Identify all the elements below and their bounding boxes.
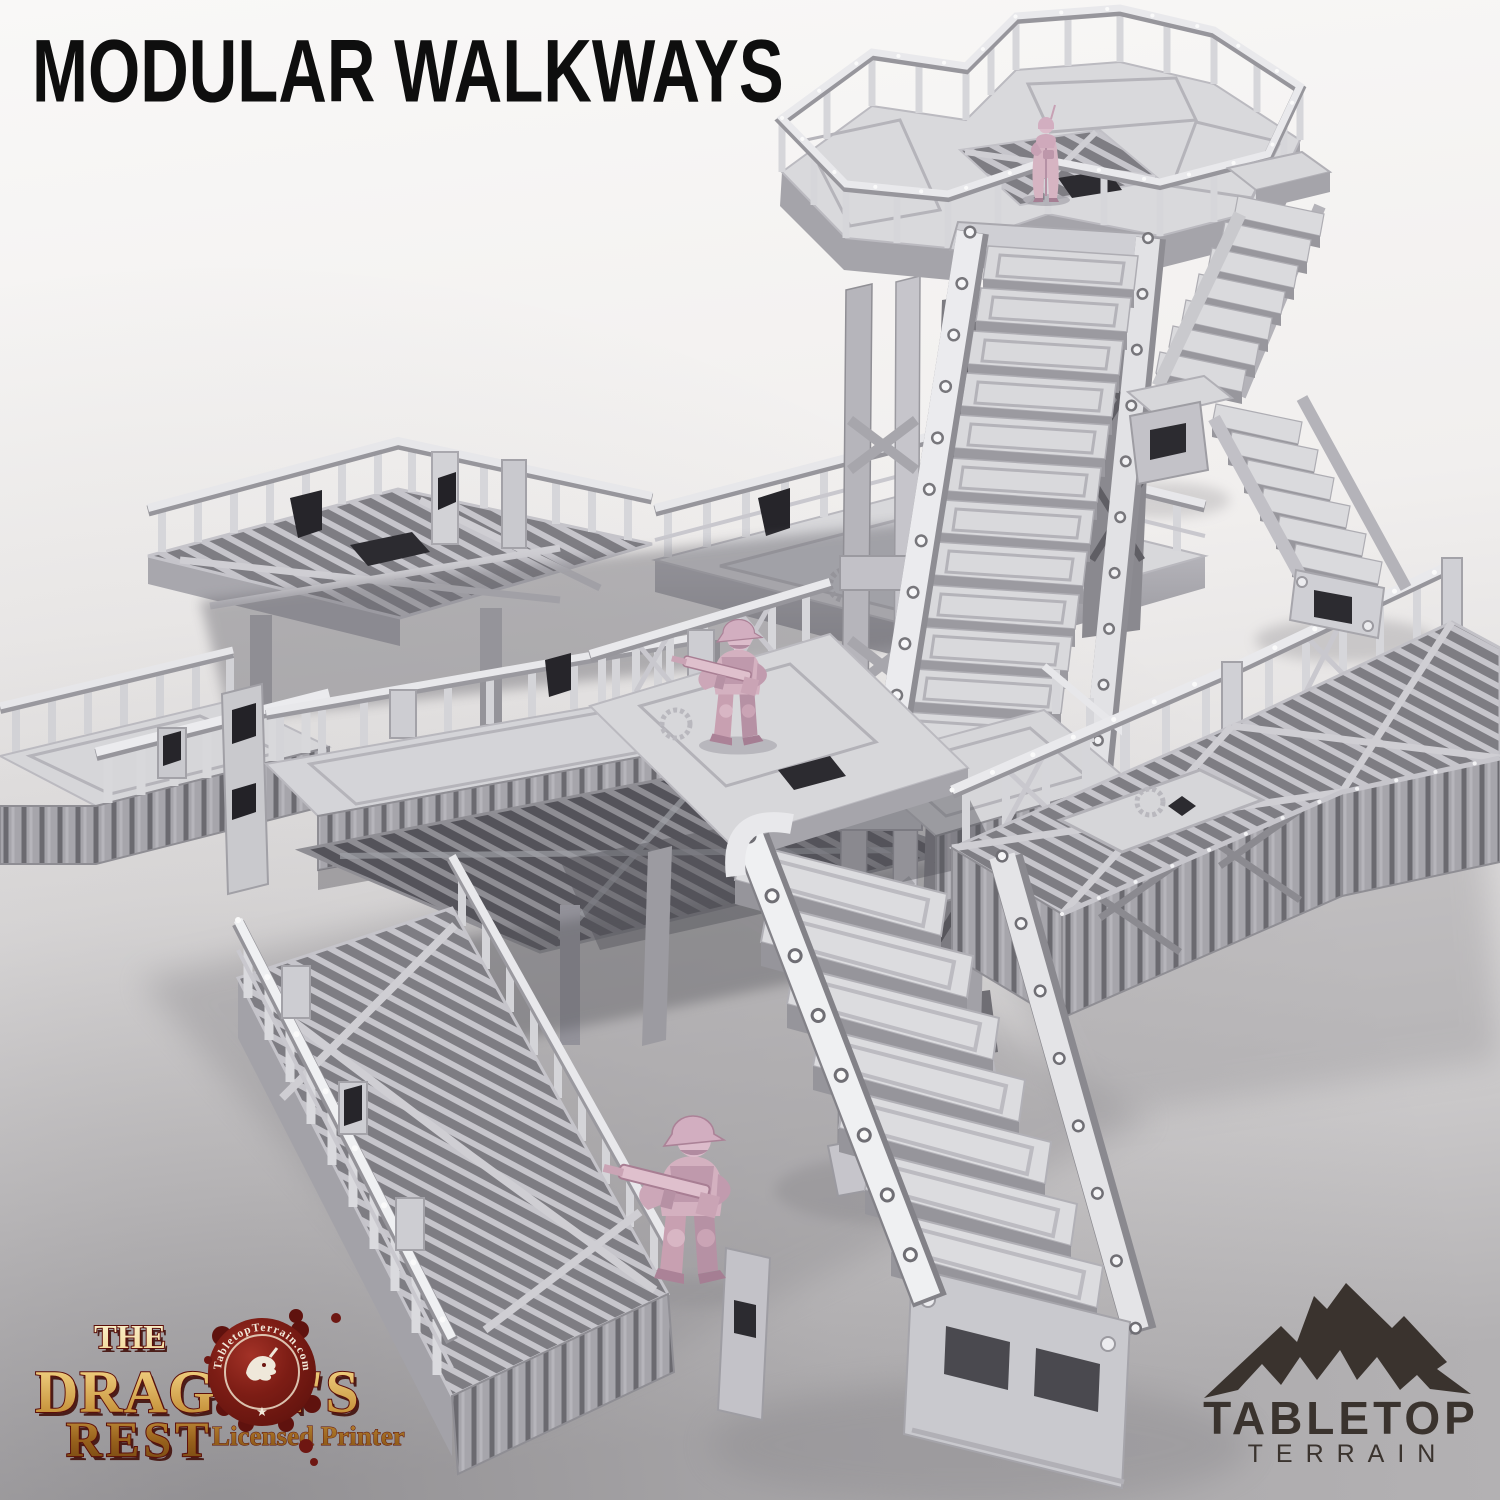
tabletop-wordmark: TABLETOP [1203, 1392, 1479, 1444]
logo-the: THE [94, 1319, 166, 1356]
scene-render: THE DRAGON'S REST THE DRAGON'S REST Lice… [0, 0, 1500, 1500]
seal-star: ★ [256, 1405, 268, 1420]
page-title: MODULAR WALKWAYS [32, 20, 784, 123]
terrain-wordmark: TERRAIN [1248, 1440, 1449, 1468]
logo-rest: REST [66, 1411, 213, 1467]
product-image: THE DRAGON'S REST THE DRAGON'S REST Lice… [0, 0, 1500, 1500]
